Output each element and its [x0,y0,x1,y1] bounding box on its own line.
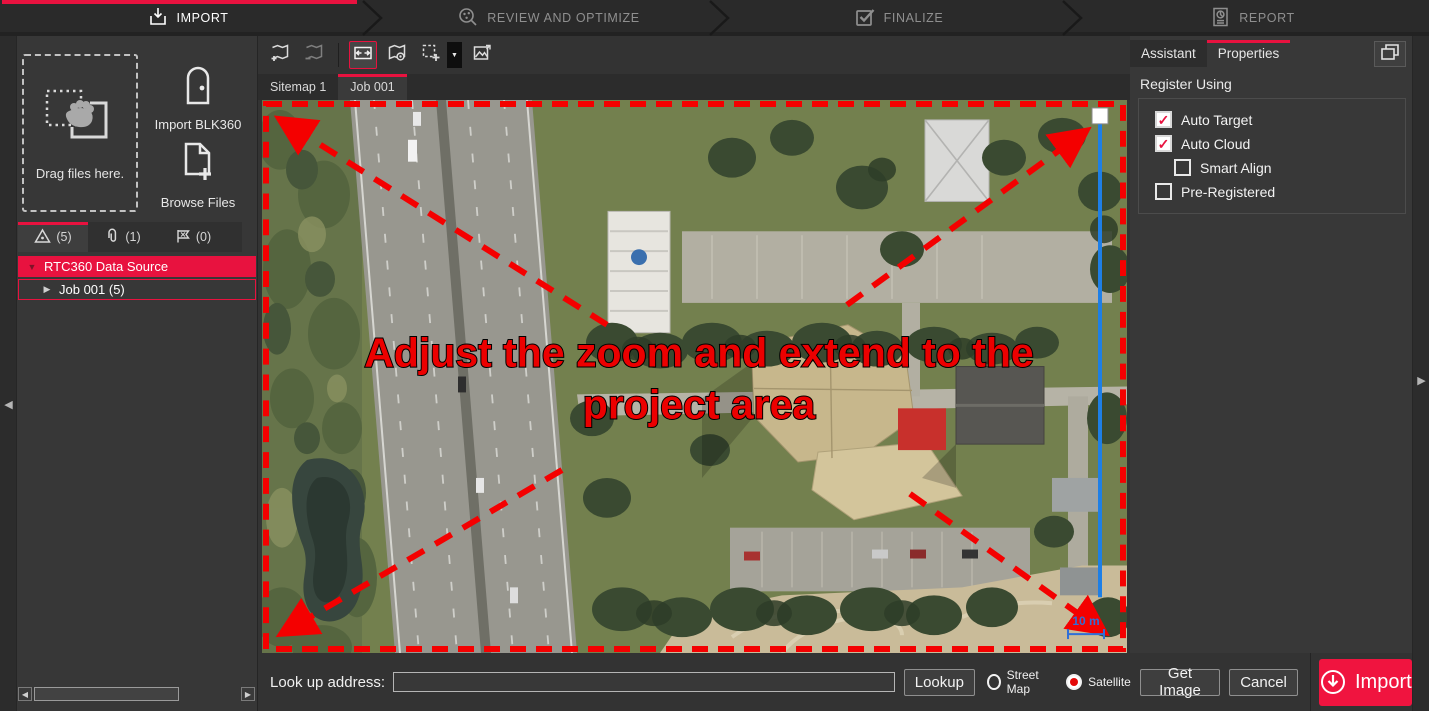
import-tray-icon [147,6,169,31]
tab-links[interactable]: (0) [158,222,228,252]
workflow-header: IMPORT REVIEW AND OPTIMIZE FINALIZE [0,0,1429,36]
smart-align-checkbox[interactable] [1174,159,1191,176]
fit-to-extents-icon [353,43,373,68]
step-label: IMPORT [177,11,229,25]
tree-item-label: Job 001 (5) [59,282,125,297]
geo-locate-icon [387,43,407,68]
add-sitemap-button[interactable] [266,41,294,69]
option-label: Auto Cloud [1181,136,1250,152]
address-input[interactable] [393,672,895,692]
street-map-radio-option[interactable]: Street Map [987,668,1054,696]
import-blk360-label: Import BLK360 [155,117,242,132]
project-sources-panel: Drag files here. Import BLK360 Browse Fi… [17,36,258,711]
step-label: REPORT [1239,11,1294,25]
step-review-and-optimize[interactable]: REVIEW AND OPTIMIZE [375,0,722,36]
satellite-radio-option[interactable]: Satellite [1066,674,1131,690]
sitemap-toolbar: ▼ [258,36,1130,74]
auto-cloud-checkbox[interactable] [1155,135,1172,152]
expand-right-panel-handle[interactable]: ▶ [1415,369,1428,391]
tab-assistant[interactable]: Assistant [1130,40,1207,67]
tab-label: Assistant [1141,46,1196,61]
option-pre-registered: Pre-Registered [1155,183,1405,200]
auto-target-checkbox[interactable] [1155,111,1172,128]
step-report[interactable]: REPORT [1075,0,1429,36]
option-auto-cloud: Auto Cloud [1155,135,1405,152]
radio-label: Satellite [1088,675,1131,689]
sitemap-tabs: Sitemap 1 Job 001 [258,74,1130,100]
scroll-right-button[interactable]: ▶ [241,687,255,701]
collapse-caret-icon[interactable]: ▼ [26,262,38,272]
checkbox-icon [854,6,876,31]
map-workspace: ▼ Sitemap 1 Job 001 [258,36,1130,653]
source-tree: ▼ RTC360 Data Source ▶ Job 001 (5) [18,256,256,300]
insert-image-icon [472,43,492,68]
tab-sitemap-1[interactable]: Sitemap 1 [258,74,338,100]
option-label: Pre-Registered [1181,184,1275,200]
application-window: IMPORT REVIEW AND OPTIMIZE FINALIZE [0,0,1429,711]
properties-panel: Assistant Properties Register Using Auto… [1130,36,1412,653]
step-label: FINALIZE [884,11,944,25]
setups-icon [34,228,51,247]
tab-count: (1) [125,230,140,244]
overlay-instruction-line1: Adjust the zoom and extend to the [364,330,1033,376]
radio-label: Street Map [1007,668,1055,696]
right-panel-tabs: Assistant Properties [1130,40,1412,67]
import-button-label: Import [1355,671,1412,694]
import-circle-arrow-icon [1319,668,1347,696]
option-smart-align: Smart Align [1174,159,1405,176]
aerial-imagery: Adjust the zoom and extend to the projec… [262,100,1127,653]
tab-count: (0) [196,230,211,244]
lookup-button[interactable]: Lookup [904,669,975,696]
address-bar: Look up address: Lookup Street Map Satel… [258,653,1412,711]
tab-job-001[interactable]: Job 001 [338,74,406,100]
satellite-radio[interactable] [1066,674,1082,690]
blk360-scanner-icon [181,62,215,111]
insert-image-button[interactable] [468,41,496,69]
scrollbar-track[interactable] [32,687,241,701]
import-button[interactable]: Import [1319,659,1412,706]
draw-region-dropdown[interactable]: ▼ [447,42,462,68]
register-using-title: Register Using [1140,76,1232,92]
get-image-button[interactable]: Get Image [1140,669,1220,696]
browse-files-button[interactable]: Browse Files [143,140,253,210]
remove-sitemap-icon [304,43,324,68]
pre-registered-checkbox[interactable] [1155,183,1172,200]
street-map-radio[interactable] [987,674,1001,690]
file-plus-icon [180,140,216,189]
drag-files-dropzone[interactable]: Drag files here. [22,54,138,212]
tab-setups[interactable]: (5) [18,222,88,252]
tab-properties[interactable]: Properties [1207,40,1291,67]
source-list-tabs: (5) (1) (0) [18,222,242,252]
tab-label: Job 001 [350,80,394,94]
right-rail: ▶ [1412,36,1429,711]
panel-layout-button[interactable] [1374,41,1406,67]
links-flag-icon [175,228,191,247]
step-import[interactable]: IMPORT [0,0,375,36]
collapse-left-panel-handle[interactable]: ◀ [2,393,15,415]
panel-layout-icon [1380,43,1400,66]
tree-item-label: RTC360 Data Source [44,259,168,274]
overlay-instruction-line2: project area [583,381,816,427]
option-label: Auto Target [1181,112,1252,128]
report-document-icon [1209,6,1231,31]
tab-count: (5) [56,230,71,244]
horizontal-scrollbar: ◀ ▶ [18,686,255,702]
browse-files-label: Browse Files [161,195,235,210]
expand-caret-icon[interactable]: ▶ [41,284,53,295]
left-rail: ◀ [0,36,17,711]
draw-region-icon [421,43,441,68]
scroll-left-button[interactable]: ◀ [18,687,32,701]
remove-sitemap-button[interactable] [300,41,328,69]
import-blk360-button[interactable]: Import BLK360 [143,62,253,132]
assets-paperclip-icon [105,228,120,247]
address-label: Look up address: [270,674,385,691]
geo-locate-button[interactable] [383,41,411,69]
cancel-button[interactable]: Cancel [1229,669,1298,696]
tree-item-job-001[interactable]: ▶ Job 001 (5) [18,279,256,300]
step-finalize[interactable]: FINALIZE [722,0,1075,36]
option-label: Smart Align [1200,160,1272,176]
tab-label: Sitemap 1 [270,80,326,94]
grab-hand-icon [44,85,116,156]
scrollbar-thumb[interactable] [34,687,179,701]
step-label: REVIEW AND OPTIMIZE [487,11,639,25]
register-using-group: Auto Target Auto Cloud Smart Align Pre-R… [1138,98,1406,214]
magnifier-bundle-icon [457,6,479,31]
svg-text:10 m: 10 m [1072,614,1099,628]
satellite-map-view[interactable]: Adjust the zoom and extend to the projec… [262,100,1127,653]
bottom-bar-separator [1310,653,1311,711]
add-sitemap-icon [270,43,290,68]
fit-to-extents-button[interactable] [349,41,377,69]
tab-assets[interactable]: (1) [88,222,158,252]
measure-handle[interactable] [1092,108,1108,124]
tree-item-rtc360-data-source[interactable]: ▼ RTC360 Data Source [18,256,256,277]
tab-label: Properties [1218,46,1280,61]
dropzone-label: Drag files here. [36,166,124,181]
toolbar-separator [338,43,339,67]
option-auto-target: Auto Target [1155,111,1405,128]
draw-region-button[interactable] [417,41,445,69]
